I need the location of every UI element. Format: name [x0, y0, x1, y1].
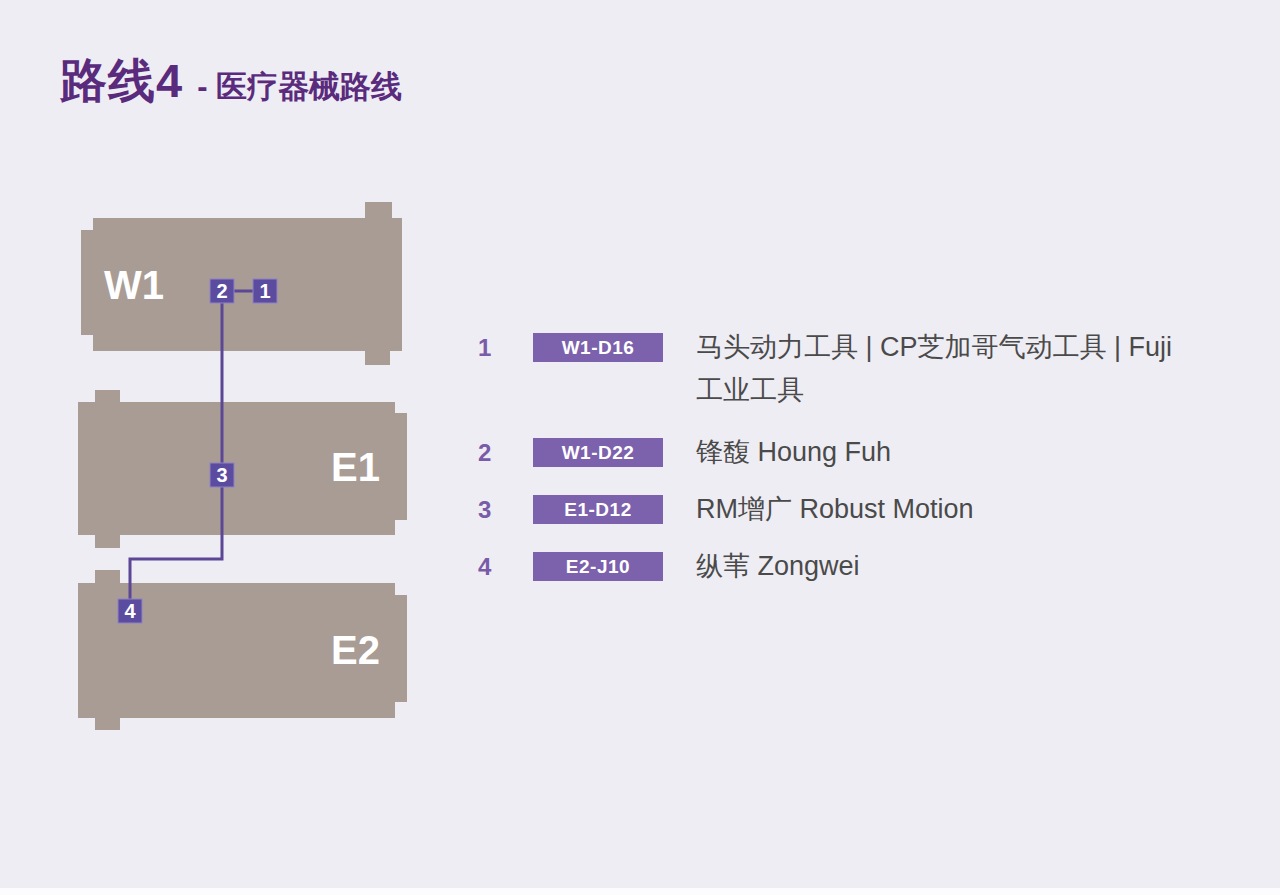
legend-item-2-name: 锋馥 Houng Fuh	[696, 431, 891, 474]
route-marker-4: 4	[118, 599, 142, 623]
route-marker-1: 1	[253, 279, 277, 303]
legend-item-1-booth-badge: W1-D16	[533, 333, 663, 362]
legend-item-4: 4 E2-J10 纵苇 Zongwei	[478, 552, 860, 588]
legend-item-1-number: 1	[478, 333, 500, 362]
bottom-edge-strip	[0, 888, 1280, 895]
route-marker-2-label: 2	[216, 280, 227, 302]
building-w1-label: W1	[104, 263, 164, 307]
building-e2-label: E2	[331, 628, 380, 672]
legend-item-4-booth-badge: E2-J10	[533, 552, 663, 581]
route-marker-3: 3	[210, 463, 234, 487]
legend-item-2-number: 2	[478, 438, 500, 467]
legend-item-3: 3 E1-D12 RM增广 Robust Motion	[478, 495, 974, 531]
legend-item-3-name: RM增广 Robust Motion	[696, 488, 974, 531]
building-e1-label: E1	[331, 445, 380, 489]
legend-item-4-name: 纵苇 Zongwei	[696, 545, 860, 588]
route-marker-2: 2	[210, 279, 234, 303]
legend-item-3-number: 3	[478, 495, 500, 524]
route-marker-3-label: 3	[216, 464, 227, 486]
legend-item-1-name: 马头动力工具 | CP芝加哥气动工具 | Fuji工业工具	[696, 326, 1174, 412]
legend-item-4-number: 4	[478, 552, 500, 581]
legend-item-2-booth-badge: W1-D22	[533, 438, 663, 467]
route-marker-4-label: 4	[124, 600, 136, 622]
route-marker-1-label: 1	[259, 280, 270, 302]
legend-item-2: 2 W1-D22 锋馥 Houng Fuh	[478, 438, 891, 474]
legend-item-1: 1 W1-D16 马头动力工具 | CP芝加哥气动工具 | Fuji工业工具	[478, 333, 1174, 412]
legend-item-3-booth-badge: E1-D12	[533, 495, 663, 524]
slide-route-map: 路线4 - 医疗器械路线 W1 E1 E2 1 2 3 4	[0, 0, 1280, 895]
hall-map: W1 E1 E2 1 2 3 4	[0, 0, 450, 780]
